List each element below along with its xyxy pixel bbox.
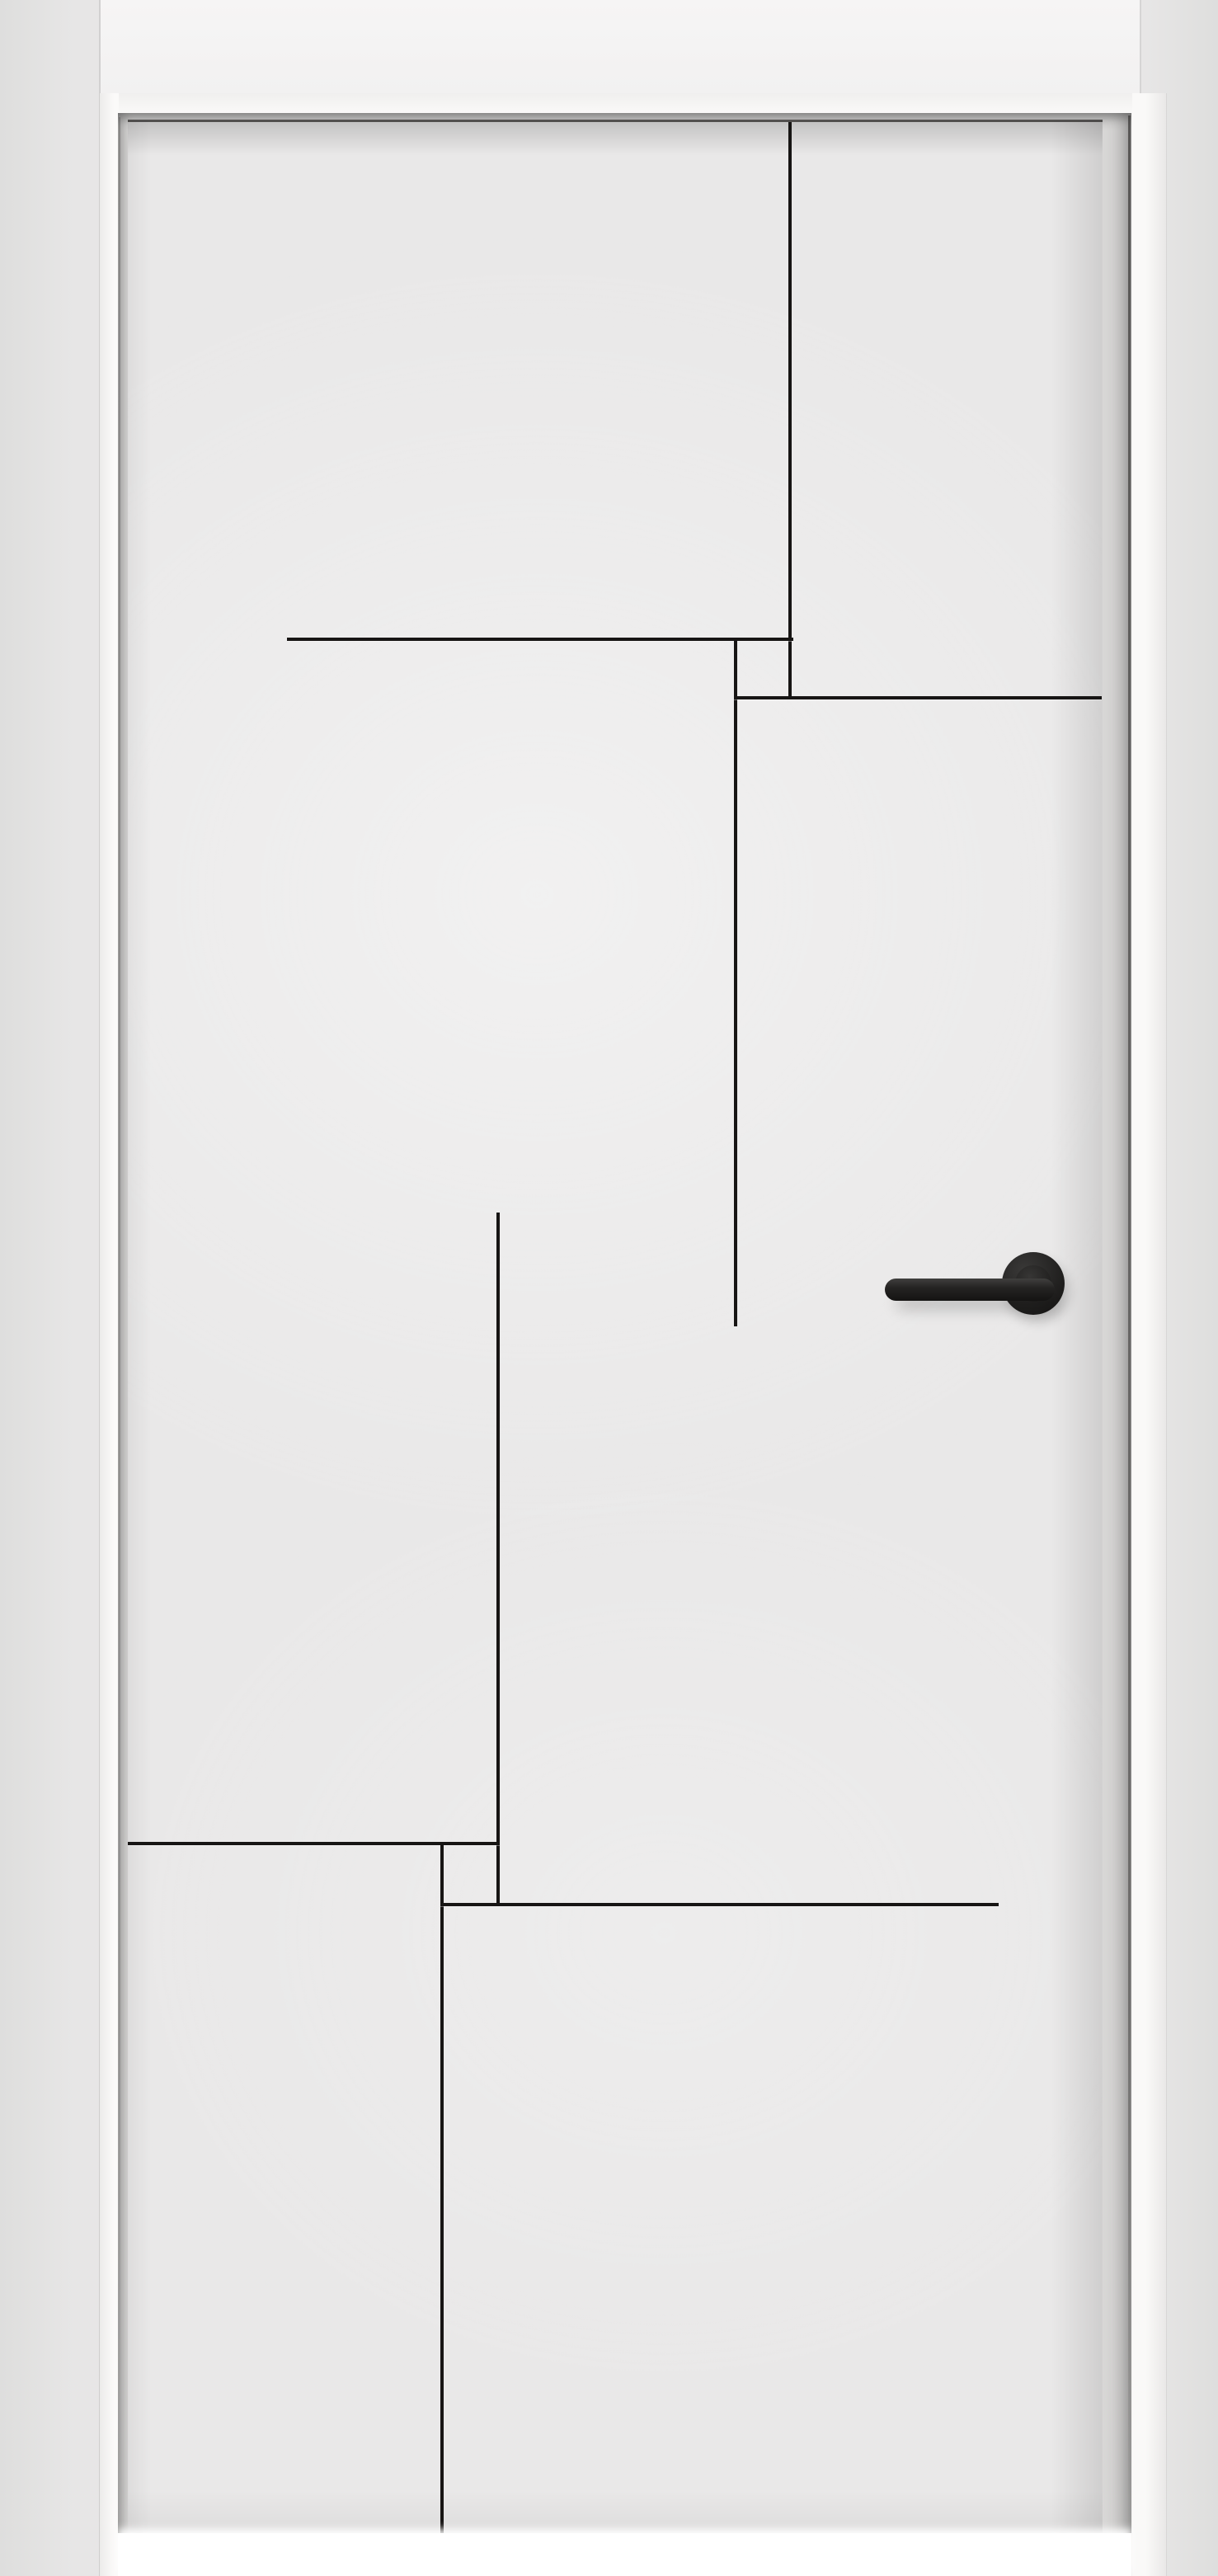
- groove-horizontal-upper-left: [287, 638, 793, 641]
- groove-vertical-top: [788, 122, 792, 698]
- groove-horizontal-upper-right: [734, 696, 1102, 699]
- wall-band-above-frame: [99, 0, 1141, 93]
- groove-horizontal-lower-left: [128, 1842, 500, 1845]
- groove-layer: [128, 122, 1103, 2536]
- door-handle-lever-icon: [885, 1279, 1055, 1301]
- groove-vertical-middle: [496, 1213, 500, 1905]
- floor-strip: [118, 2533, 1131, 2576]
- groove-vertical-upper-mid: [734, 639, 737, 1326]
- door-product-photo: [0, 0, 1218, 2576]
- right-jamb-edge-line: [1128, 115, 1131, 2528]
- door-slab: [128, 120, 1103, 2538]
- groove-horizontal-lower-right: [440, 1903, 999, 1906]
- groove-vertical-bottom: [440, 1844, 444, 2536]
- left-jamb-edge-line: [119, 117, 120, 2509]
